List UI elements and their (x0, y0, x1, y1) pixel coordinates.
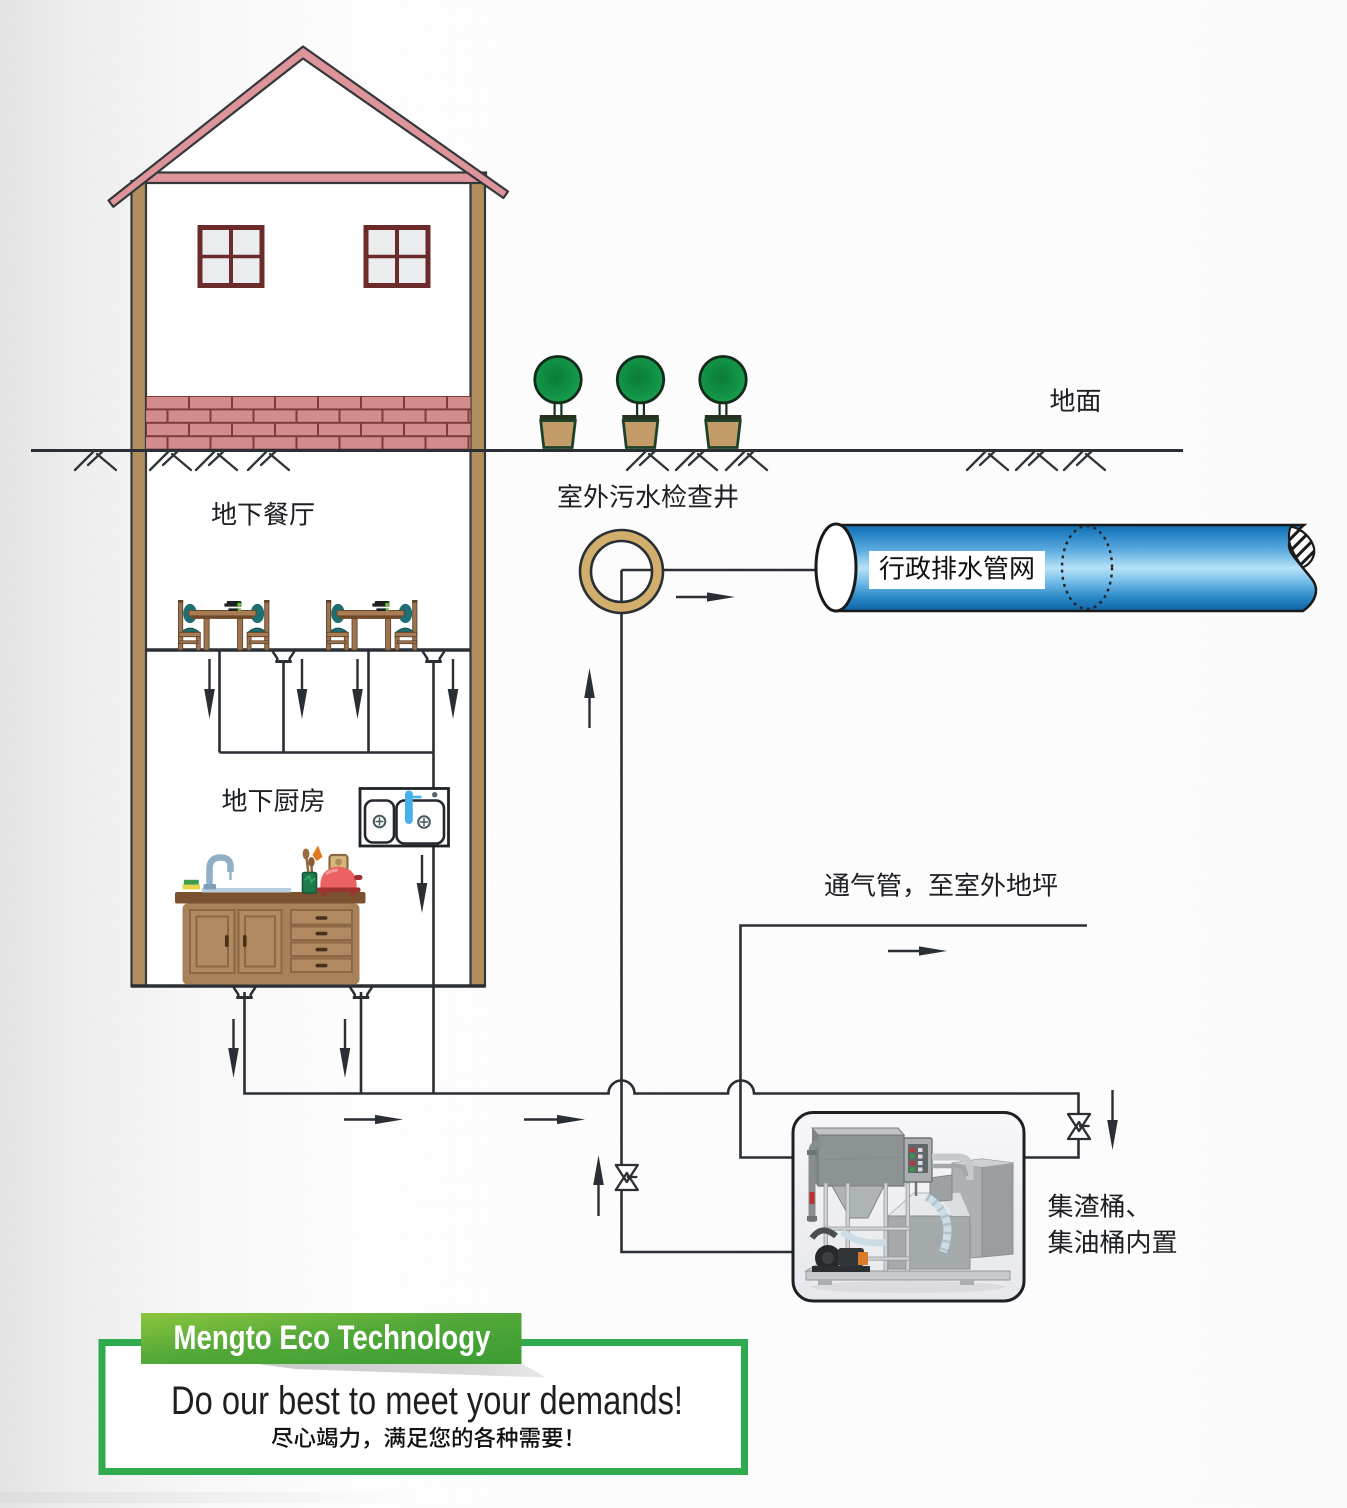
svg-text:Mengto Eco Technology: Mengto Eco Technology (174, 1319, 491, 1357)
svg-text:Do our best to meet your deman: Do our best to meet your demands! (171, 1379, 683, 1423)
